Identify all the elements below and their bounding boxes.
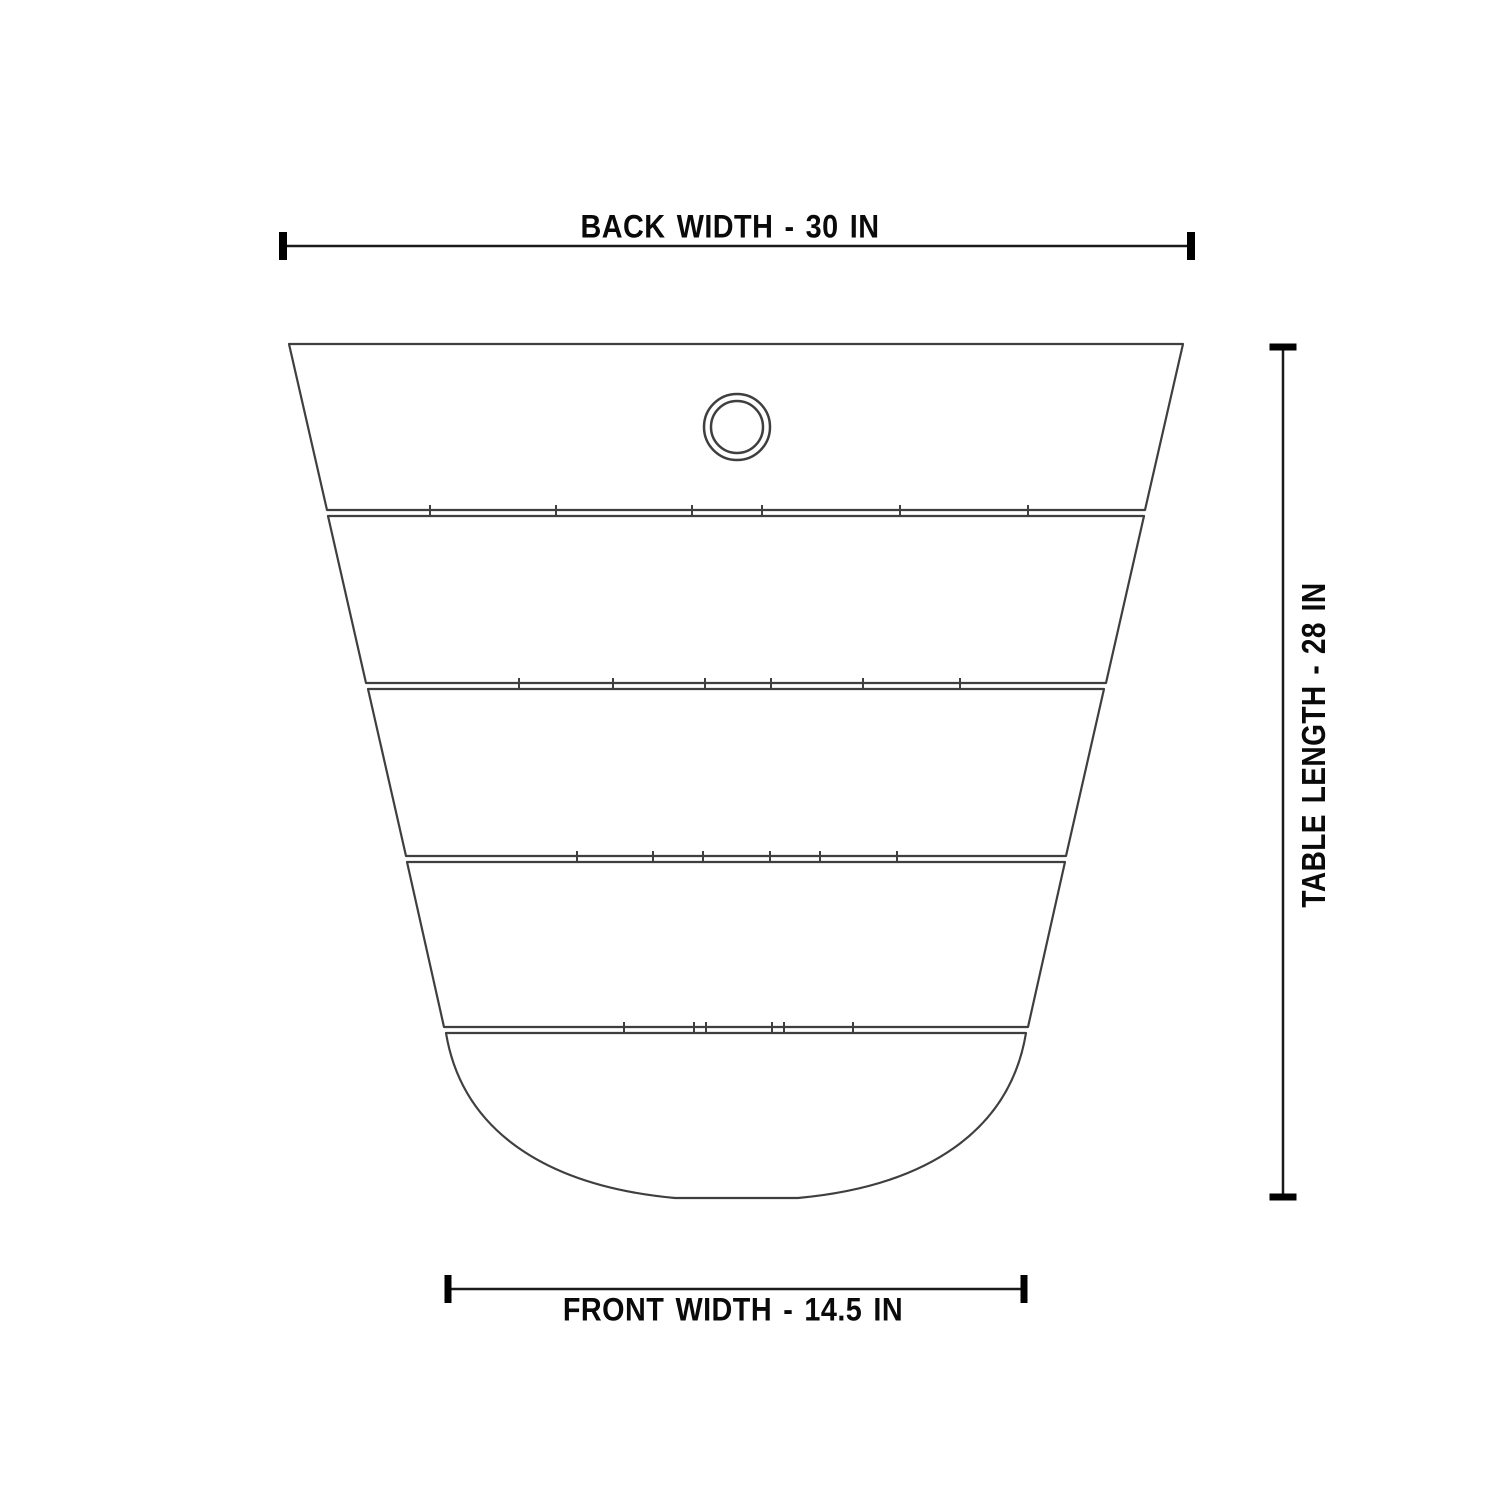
- back-width-dimension-end-tick: [279, 232, 287, 260]
- slat-2: [328, 516, 1144, 683]
- front-width-label: FRONT WIDTH - 14.5 IN: [563, 1292, 903, 1329]
- table-length-dimension-end-tick: [1270, 1194, 1297, 1201]
- back-width-label: BACK WIDTH - 30 IN: [581, 209, 880, 246]
- slat-1: [289, 344, 1183, 510]
- back-width-dimension-end-tick: [1187, 232, 1195, 260]
- front-rounded-piece: [446, 1033, 1026, 1198]
- front-width-dimension-end-tick: [445, 1275, 452, 1303]
- slat-3: [368, 689, 1104, 856]
- table-length-dimension-end-tick: [1270, 344, 1297, 351]
- table-top-dimension-diagram: BACK WIDTH - 30 IN TABLE LENGTH - 28 IN …: [0, 0, 1500, 1500]
- slat-4: [407, 862, 1065, 1027]
- front-width-dimension-end-tick: [1021, 1275, 1028, 1303]
- table-length-label: TABLE LENGTH - 28 IN: [1295, 582, 1333, 907]
